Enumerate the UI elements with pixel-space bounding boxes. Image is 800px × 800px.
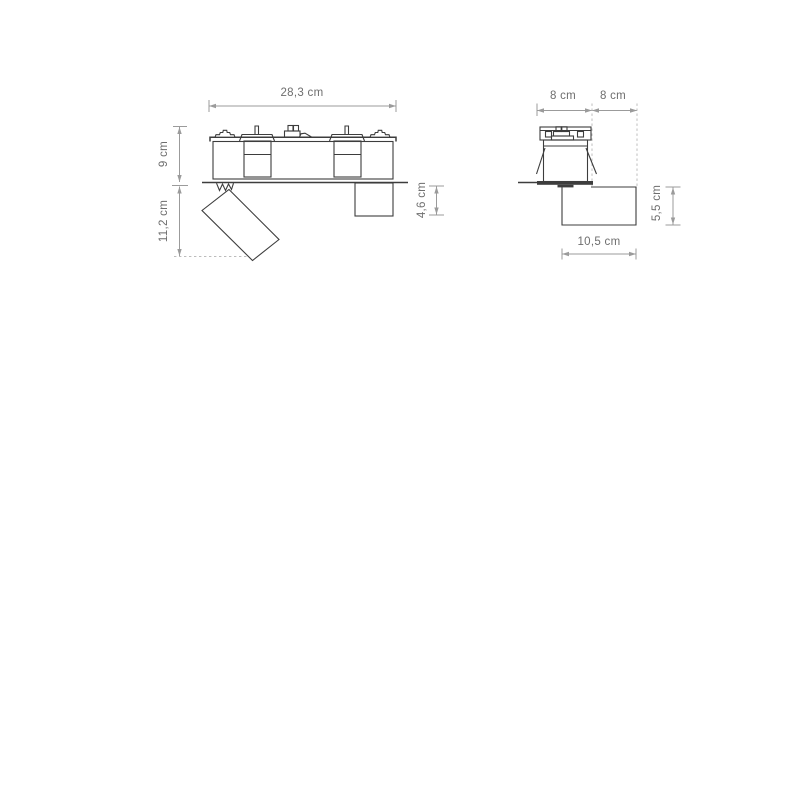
side-canopy-height-dimension: 5,5 cm	[651, 185, 681, 225]
front-width-label: 28,3 cm	[280, 87, 323, 99]
connector-pin-left	[288, 126, 293, 132]
dim-arrow-down	[177, 249, 181, 256]
side-canopy-width-label: 10,5 cm	[577, 236, 620, 248]
technical-drawing: 28,3 cm 9 cm 11,2 cm 4,6 cm	[0, 0, 800, 800]
terminal-block-mid	[554, 132, 570, 137]
front-fixture	[202, 126, 408, 261]
adjuster-body	[334, 141, 361, 177]
housing-body	[213, 142, 393, 180]
dim-arrow-right	[629, 252, 636, 256]
terminal-block-base	[552, 136, 574, 140]
dim-arrow-left	[562, 252, 569, 256]
dim-arrow-up	[434, 187, 438, 194]
dome-knob-shape	[370, 130, 390, 137]
side-head-width-label: 8 cm	[550, 90, 576, 102]
dim-arrow-right	[389, 104, 396, 108]
dimension-drawing-canvas: 28,3 cm 9 cm 11,2 cm 4,6 cm	[0, 0, 800, 800]
front-upper-height-label: 9 cm	[158, 141, 170, 167]
adjuster-pin	[255, 126, 259, 135]
front-canopy-height-dimension: 4,6 cm	[416, 182, 444, 218]
front-canopy-height-label: 4,6 cm	[416, 182, 428, 218]
front-width-dimension: 28,3 cm	[209, 87, 396, 112]
side-offset-width-label: 8 cm	[600, 90, 626, 102]
dim-arrow-mid-left	[592, 108, 599, 112]
dim-arrow-mid-right	[585, 108, 592, 112]
dome-knob-shape	[215, 130, 235, 137]
side-canopy-width-dimension: 10,5 cm	[562, 236, 636, 260]
dome-knob-left	[213, 130, 238, 137]
adjuster-pin	[345, 126, 349, 135]
dome-knob-right	[368, 130, 393, 137]
dim-arrow-up	[177, 187, 181, 194]
trim-flange-bump	[558, 185, 574, 188]
connector-wedge	[300, 133, 312, 137]
adjuster-module-left	[240, 126, 275, 177]
dim-arrow-up	[177, 127, 181, 134]
front-view: 28,3 cm 9 cm 11,2 cm 4,6 cm	[158, 87, 444, 261]
trim-flange	[537, 181, 593, 185]
dim-arrow-down	[671, 218, 675, 225]
adjuster-module-right	[330, 126, 365, 177]
center-connector	[285, 126, 312, 138]
connector-base	[285, 131, 301, 137]
side-canopy-height-label: 5,5 cm	[651, 185, 663, 221]
adjuster-body	[244, 141, 271, 177]
dim-arrow-up	[671, 188, 675, 195]
front-upper-height-dimension: 9 cm	[158, 127, 188, 186]
spot-head	[202, 190, 279, 261]
front-lower-height-label: 11,2 cm	[158, 200, 170, 242]
dim-arrow-left	[209, 104, 216, 108]
side-canopy-box	[562, 187, 636, 225]
canopy-box	[355, 183, 393, 216]
side-fixture-head	[518, 127, 597, 188]
cap-detail-right	[578, 132, 584, 138]
dim-arrow-left	[537, 108, 544, 112]
connector-pin-right	[294, 126, 299, 132]
dim-arrow-right	[630, 108, 637, 112]
cap-detail-left	[546, 132, 552, 138]
side-view: 8 cm 8 cm	[518, 90, 681, 260]
dim-arrow-down	[177, 175, 181, 182]
dim-arrow-down	[434, 208, 438, 215]
spot-hinge-bracket	[217, 183, 234, 190]
